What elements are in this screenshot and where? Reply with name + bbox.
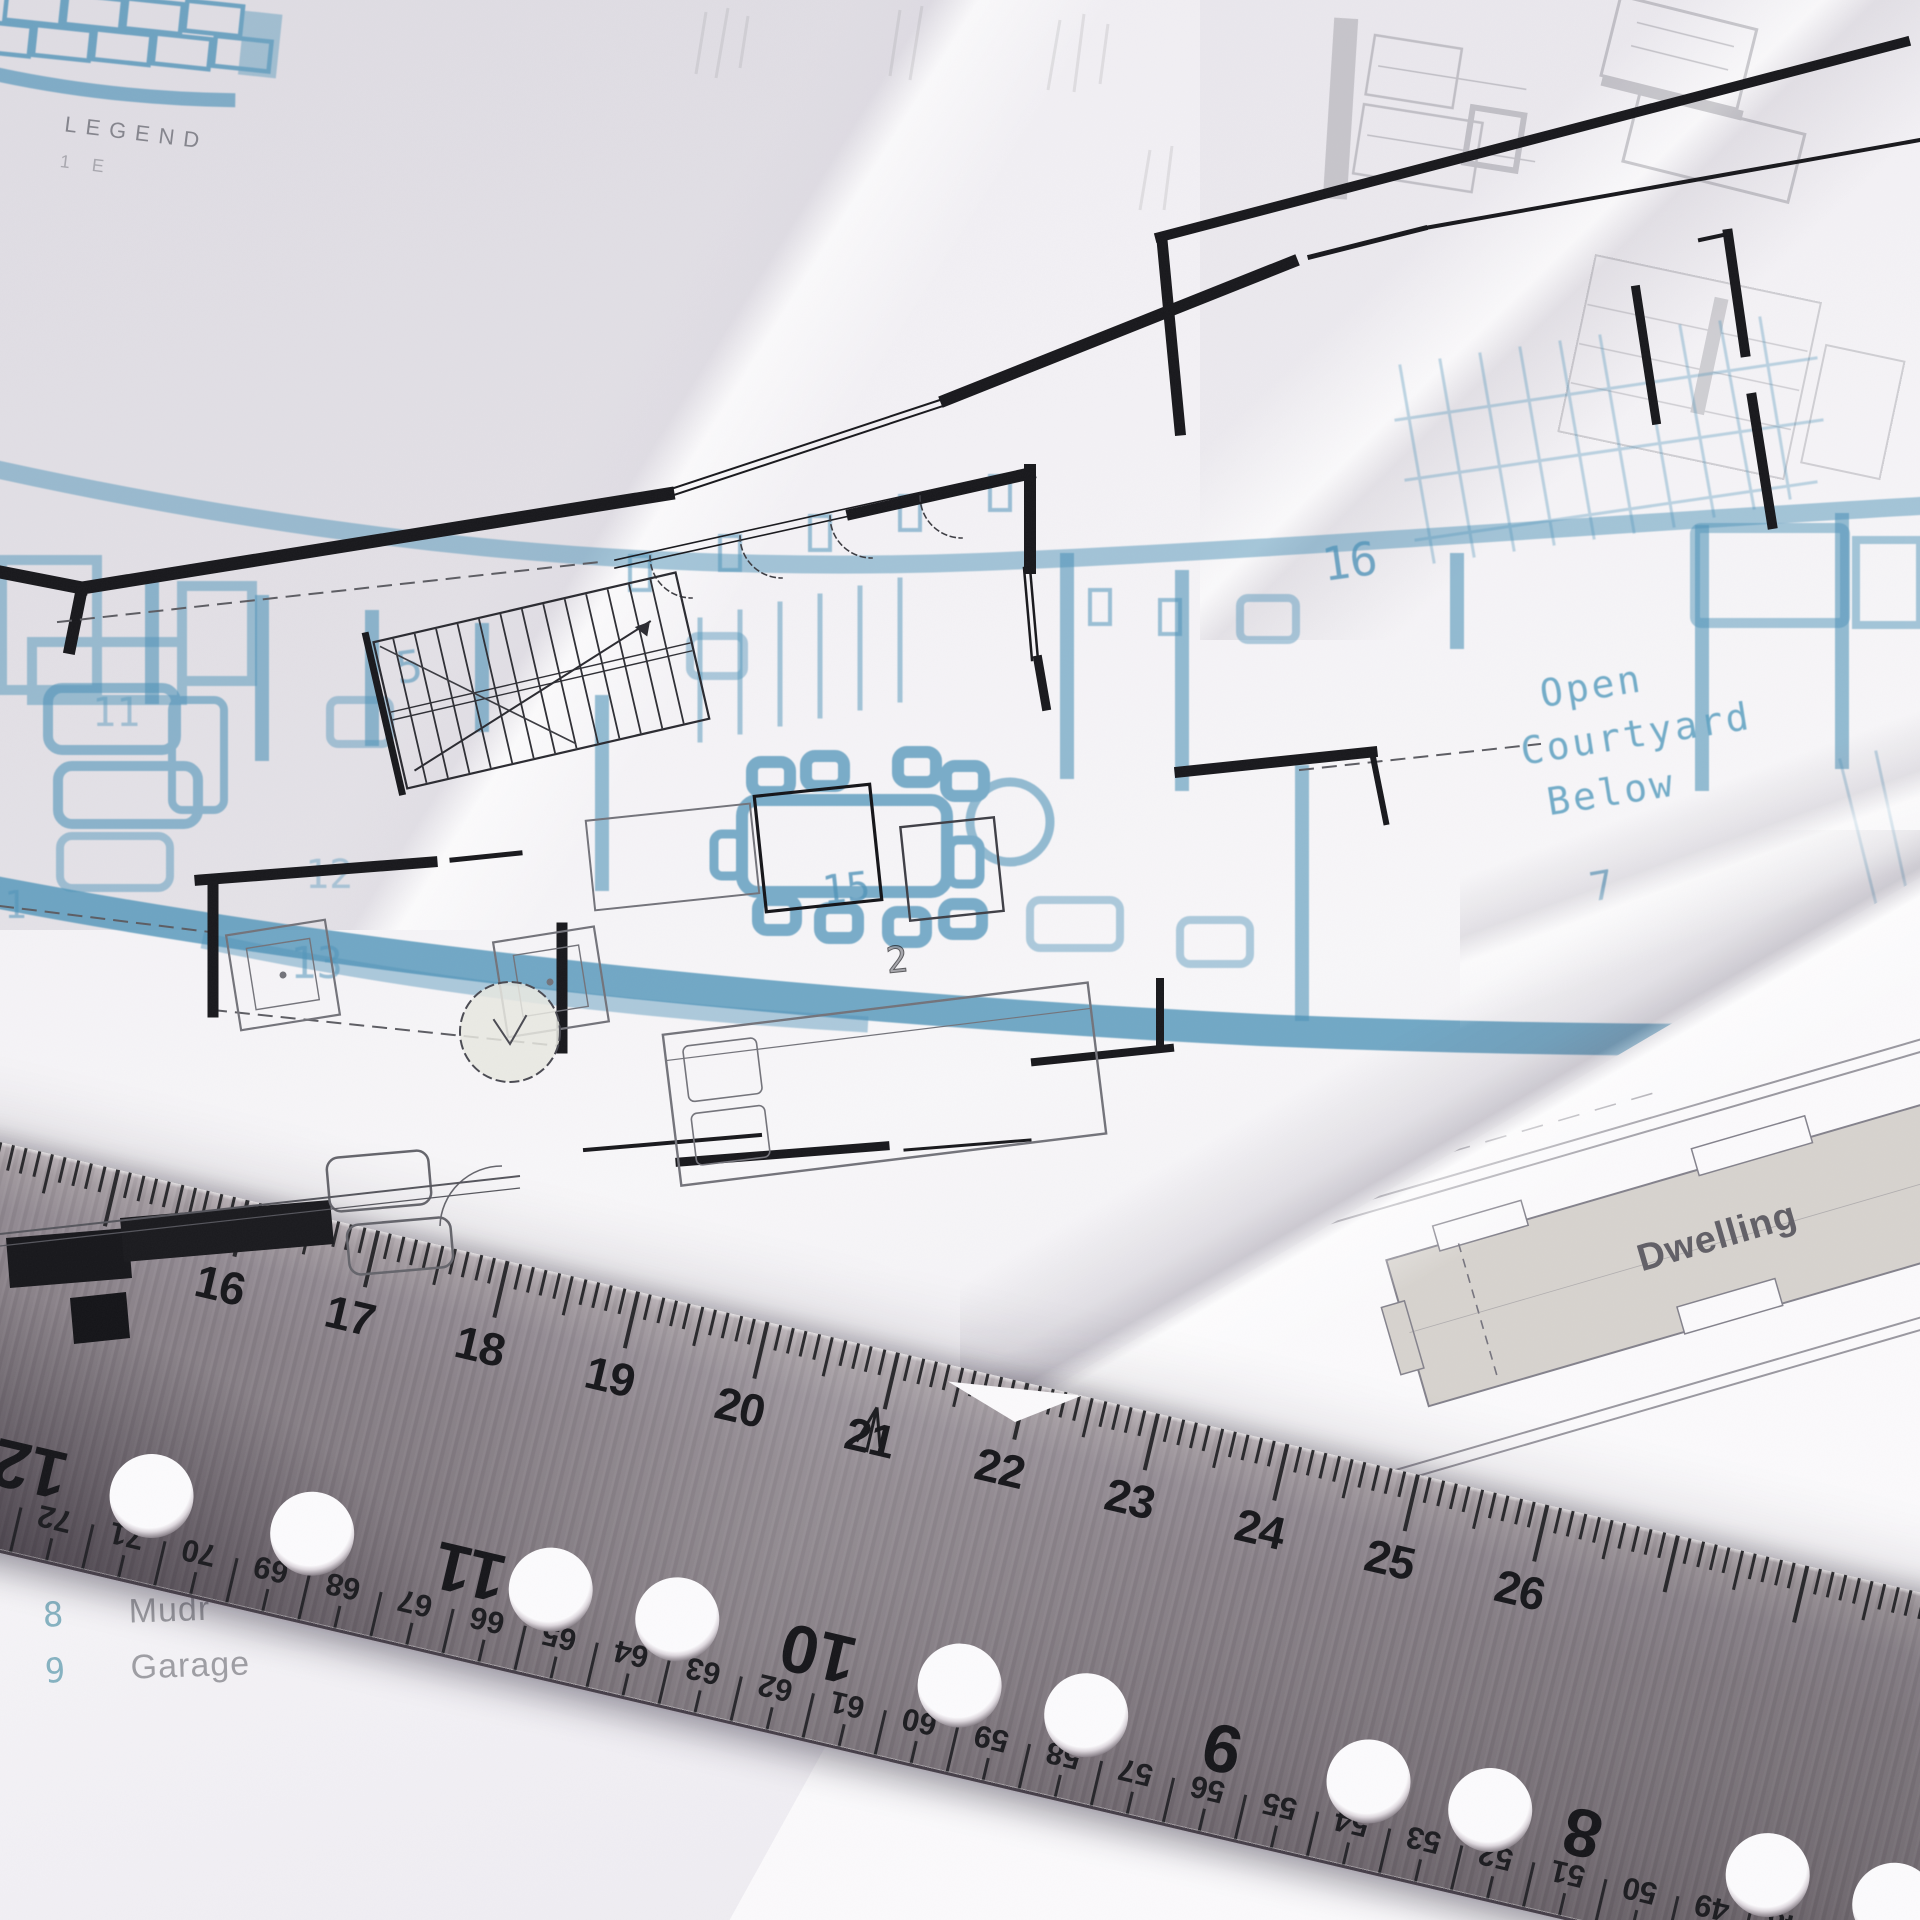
ruler-tick xyxy=(1176,1419,1185,1445)
ruler-tick xyxy=(838,1340,847,1366)
ruler-tick xyxy=(1696,1541,1705,1567)
ruler-tick xyxy=(1891,1587,1900,1613)
ruler-bottom-number-70: 70 xyxy=(166,1528,233,1577)
ruler-tick xyxy=(1514,1499,1523,1525)
ruler-tick xyxy=(1124,1407,1133,1433)
ruler-tick xyxy=(1202,1425,1211,1451)
ruler-tick xyxy=(1761,1556,1770,1582)
ruler-top-number-21: 21 xyxy=(823,1402,917,1474)
ruler-tick xyxy=(1436,1480,1445,1506)
ruler-tick xyxy=(721,1313,730,1339)
ruler-tick xyxy=(1774,1559,1783,1585)
ruler-tick xyxy=(1098,1401,1107,1427)
ruler-tick xyxy=(1878,1584,1887,1610)
ruler-tick xyxy=(189,1572,197,1596)
ruler-tick xyxy=(883,1352,900,1409)
ruler-tick xyxy=(753,1322,770,1379)
paper-crease xyxy=(1460,680,1920,1060)
ruler-tick xyxy=(942,1364,951,1390)
plan-number-2: 2 xyxy=(884,939,910,982)
ruler-tick xyxy=(1162,1778,1176,1824)
ruler-tick xyxy=(45,1538,53,1562)
photo-scene: LEGEND 1 E xyxy=(0,0,1920,1920)
ruler-tick xyxy=(1792,1566,1809,1623)
ruler-tick xyxy=(1748,1553,1757,1579)
ruler-tick xyxy=(1488,1492,1497,1518)
ruler-tick xyxy=(1852,1578,1861,1604)
ruler-tick xyxy=(1384,1468,1393,1494)
ruler-tick xyxy=(837,1724,845,1748)
ruler-tick xyxy=(1241,1435,1250,1461)
ruler-tick xyxy=(1053,1775,1061,1799)
ruler-tick xyxy=(708,1310,717,1336)
ruler-tick xyxy=(1579,1514,1588,1540)
ruler-tick xyxy=(822,1337,834,1377)
ruler-tick xyxy=(693,1690,701,1714)
ruler-tick xyxy=(1566,1511,1575,1537)
ruler-tick xyxy=(1472,1489,1484,1529)
ruler-tick xyxy=(1163,1416,1172,1442)
ruler-tick xyxy=(1378,1828,1392,1874)
ruler-tick xyxy=(1267,1441,1276,1467)
ruler-tick xyxy=(747,1319,756,1345)
room-legend: 8 Mudr 9 Garage xyxy=(42,1588,251,1707)
ruler-tick xyxy=(729,1676,743,1722)
ruler-tick xyxy=(1722,1547,1731,1573)
ruler-tick xyxy=(1862,1581,1874,1621)
ruler-tick xyxy=(734,1316,743,1342)
ruler-top-number-25: 25 xyxy=(1343,1524,1437,1596)
ruler-tick xyxy=(1137,1410,1146,1436)
ruler-tick xyxy=(1189,1422,1198,1448)
ruler-tick xyxy=(1709,1544,1718,1570)
ruler-tick xyxy=(1082,1398,1094,1438)
ruler-top-number-20: 20 xyxy=(693,1371,787,1443)
ruler-tick xyxy=(1904,1590,1913,1616)
ruler-tick xyxy=(1522,1862,1536,1908)
ruler-tick xyxy=(1644,1529,1653,1555)
ruler-tick xyxy=(1371,1465,1380,1491)
ruler-inch-number-8: 8 xyxy=(1515,1781,1650,1884)
ruler-tick xyxy=(1342,1842,1350,1866)
ruler-top-number-22: 22 xyxy=(953,1432,1047,1504)
ruler-tick xyxy=(851,1343,860,1369)
room-legend-label-garage: Garage xyxy=(130,1644,251,1688)
ruler-tick xyxy=(1234,1794,1248,1840)
ruler-tick xyxy=(1657,1532,1666,1558)
ruler-tick xyxy=(513,1625,527,1671)
ruler-tick xyxy=(441,1609,455,1655)
ruler-tick xyxy=(1602,1520,1614,1560)
room-legend-row: 9 Garage xyxy=(44,1644,251,1691)
ruler-tick xyxy=(261,1589,269,1613)
ruler-tick xyxy=(799,1331,808,1357)
ruler-inch-number-9: 9 xyxy=(1155,1697,1290,1800)
long-wall xyxy=(0,494,668,588)
ruler-tick xyxy=(1826,1572,1835,1598)
ruler-tick xyxy=(1332,1456,1341,1482)
ruler-tick xyxy=(1462,1486,1471,1512)
ruler-tick xyxy=(916,1358,925,1384)
ruler-bottom-number-53: 53 xyxy=(1390,1815,1457,1864)
ruler-tick xyxy=(1414,1859,1422,1883)
film-fragment xyxy=(0,1080,700,1480)
ruler-tick xyxy=(1017,1744,1031,1790)
ruler-tick xyxy=(903,1355,912,1381)
ruler-tick xyxy=(1449,1483,1458,1509)
ruler-tick xyxy=(585,1642,599,1688)
ruler-tick xyxy=(1787,1563,1796,1589)
ruler-tick xyxy=(1306,1450,1315,1476)
ruler-tick xyxy=(1592,1517,1601,1543)
ruler-tick xyxy=(1423,1477,1432,1503)
ruler-top-number-24: 24 xyxy=(1213,1493,1307,1565)
ruler-tick xyxy=(1630,1910,1638,1920)
ruler-tick xyxy=(1125,1791,1133,1815)
ruler-tick xyxy=(1839,1575,1848,1601)
ruler-tick xyxy=(1486,1876,1494,1900)
ruler-tick xyxy=(981,1758,989,1782)
ruler-tick xyxy=(929,1361,938,1387)
ruler-tick xyxy=(657,1659,671,1705)
ruler-tick xyxy=(812,1334,821,1360)
ruler-tick xyxy=(1501,1495,1510,1521)
ruler-tick xyxy=(773,1325,782,1351)
ruler-tick xyxy=(801,1693,815,1739)
ruler-tick xyxy=(1270,1825,1278,1849)
ruler-tick xyxy=(1683,1538,1692,1564)
ruler-tick xyxy=(873,1710,887,1756)
ruler-tick xyxy=(1450,1845,1464,1891)
ruler-tick xyxy=(909,1741,917,1765)
ruler-top-number-23: 23 xyxy=(1083,1463,1177,1535)
ruler-tick xyxy=(945,1727,959,1773)
ruler-tick xyxy=(1397,1471,1406,1497)
ruler-tick xyxy=(1662,1535,1679,1592)
ruler-tick xyxy=(405,1623,413,1647)
ruler-tick xyxy=(1527,1502,1536,1528)
ruler-tick xyxy=(1254,1438,1263,1464)
ruler-tick xyxy=(765,1707,773,1731)
ruler-tick xyxy=(1273,1444,1290,1501)
ruler-tick xyxy=(877,1349,886,1375)
ruler-top-number-26: 26 xyxy=(1473,1554,1567,1626)
ruler-tick xyxy=(1553,1508,1562,1534)
ruler-tick xyxy=(864,1346,873,1372)
ruler-tick xyxy=(1293,1447,1302,1473)
ruler-tick xyxy=(1732,1550,1744,1590)
table-overlay-square xyxy=(754,784,881,911)
film-wall-bar xyxy=(6,1228,132,1288)
ruler-tick xyxy=(297,1575,311,1621)
ruler-tick xyxy=(225,1558,239,1604)
ruler-tick xyxy=(1143,1413,1160,1470)
ruler-tick xyxy=(153,1541,167,1587)
ruler-tick xyxy=(1212,1428,1224,1468)
ruler-tick xyxy=(621,1673,629,1697)
stairs xyxy=(366,565,710,792)
ruler-tick xyxy=(1228,1431,1237,1457)
ruler-tick xyxy=(1403,1474,1420,1531)
room-legend-number-9: 9 xyxy=(44,1650,79,1691)
ruler-tick xyxy=(1198,1808,1206,1832)
ruler-tick xyxy=(369,1592,383,1638)
ruler-tick xyxy=(1111,1404,1120,1430)
ruler-tick xyxy=(1319,1453,1328,1479)
door-swing-arcs xyxy=(650,496,962,598)
ruler-tick xyxy=(1813,1569,1822,1595)
ruler-tick xyxy=(477,1639,485,1663)
ruler-tick xyxy=(1532,1505,1549,1562)
ruler-tick xyxy=(1558,1893,1566,1917)
ruler-tick xyxy=(1631,1526,1640,1552)
film-couch-outline xyxy=(326,1150,502,1276)
ruler-tick xyxy=(9,1507,23,1553)
ruler-hole xyxy=(1844,1854,1920,1920)
ruler-tick xyxy=(549,1656,557,1680)
ruler-tick xyxy=(81,1524,95,1570)
ruler-tick xyxy=(1306,1811,1320,1857)
ruler-tick xyxy=(333,1606,341,1630)
ruler-tick xyxy=(117,1555,125,1579)
tree-symbol xyxy=(460,982,560,1082)
ruler-tick xyxy=(786,1328,795,1354)
ruler-tick xyxy=(1358,1462,1367,1488)
ruler-tick xyxy=(1342,1459,1354,1499)
room-legend-number-8: 8 xyxy=(42,1594,77,1635)
ruler-tick xyxy=(1618,1523,1627,1549)
ruler-tick xyxy=(1089,1761,1103,1807)
